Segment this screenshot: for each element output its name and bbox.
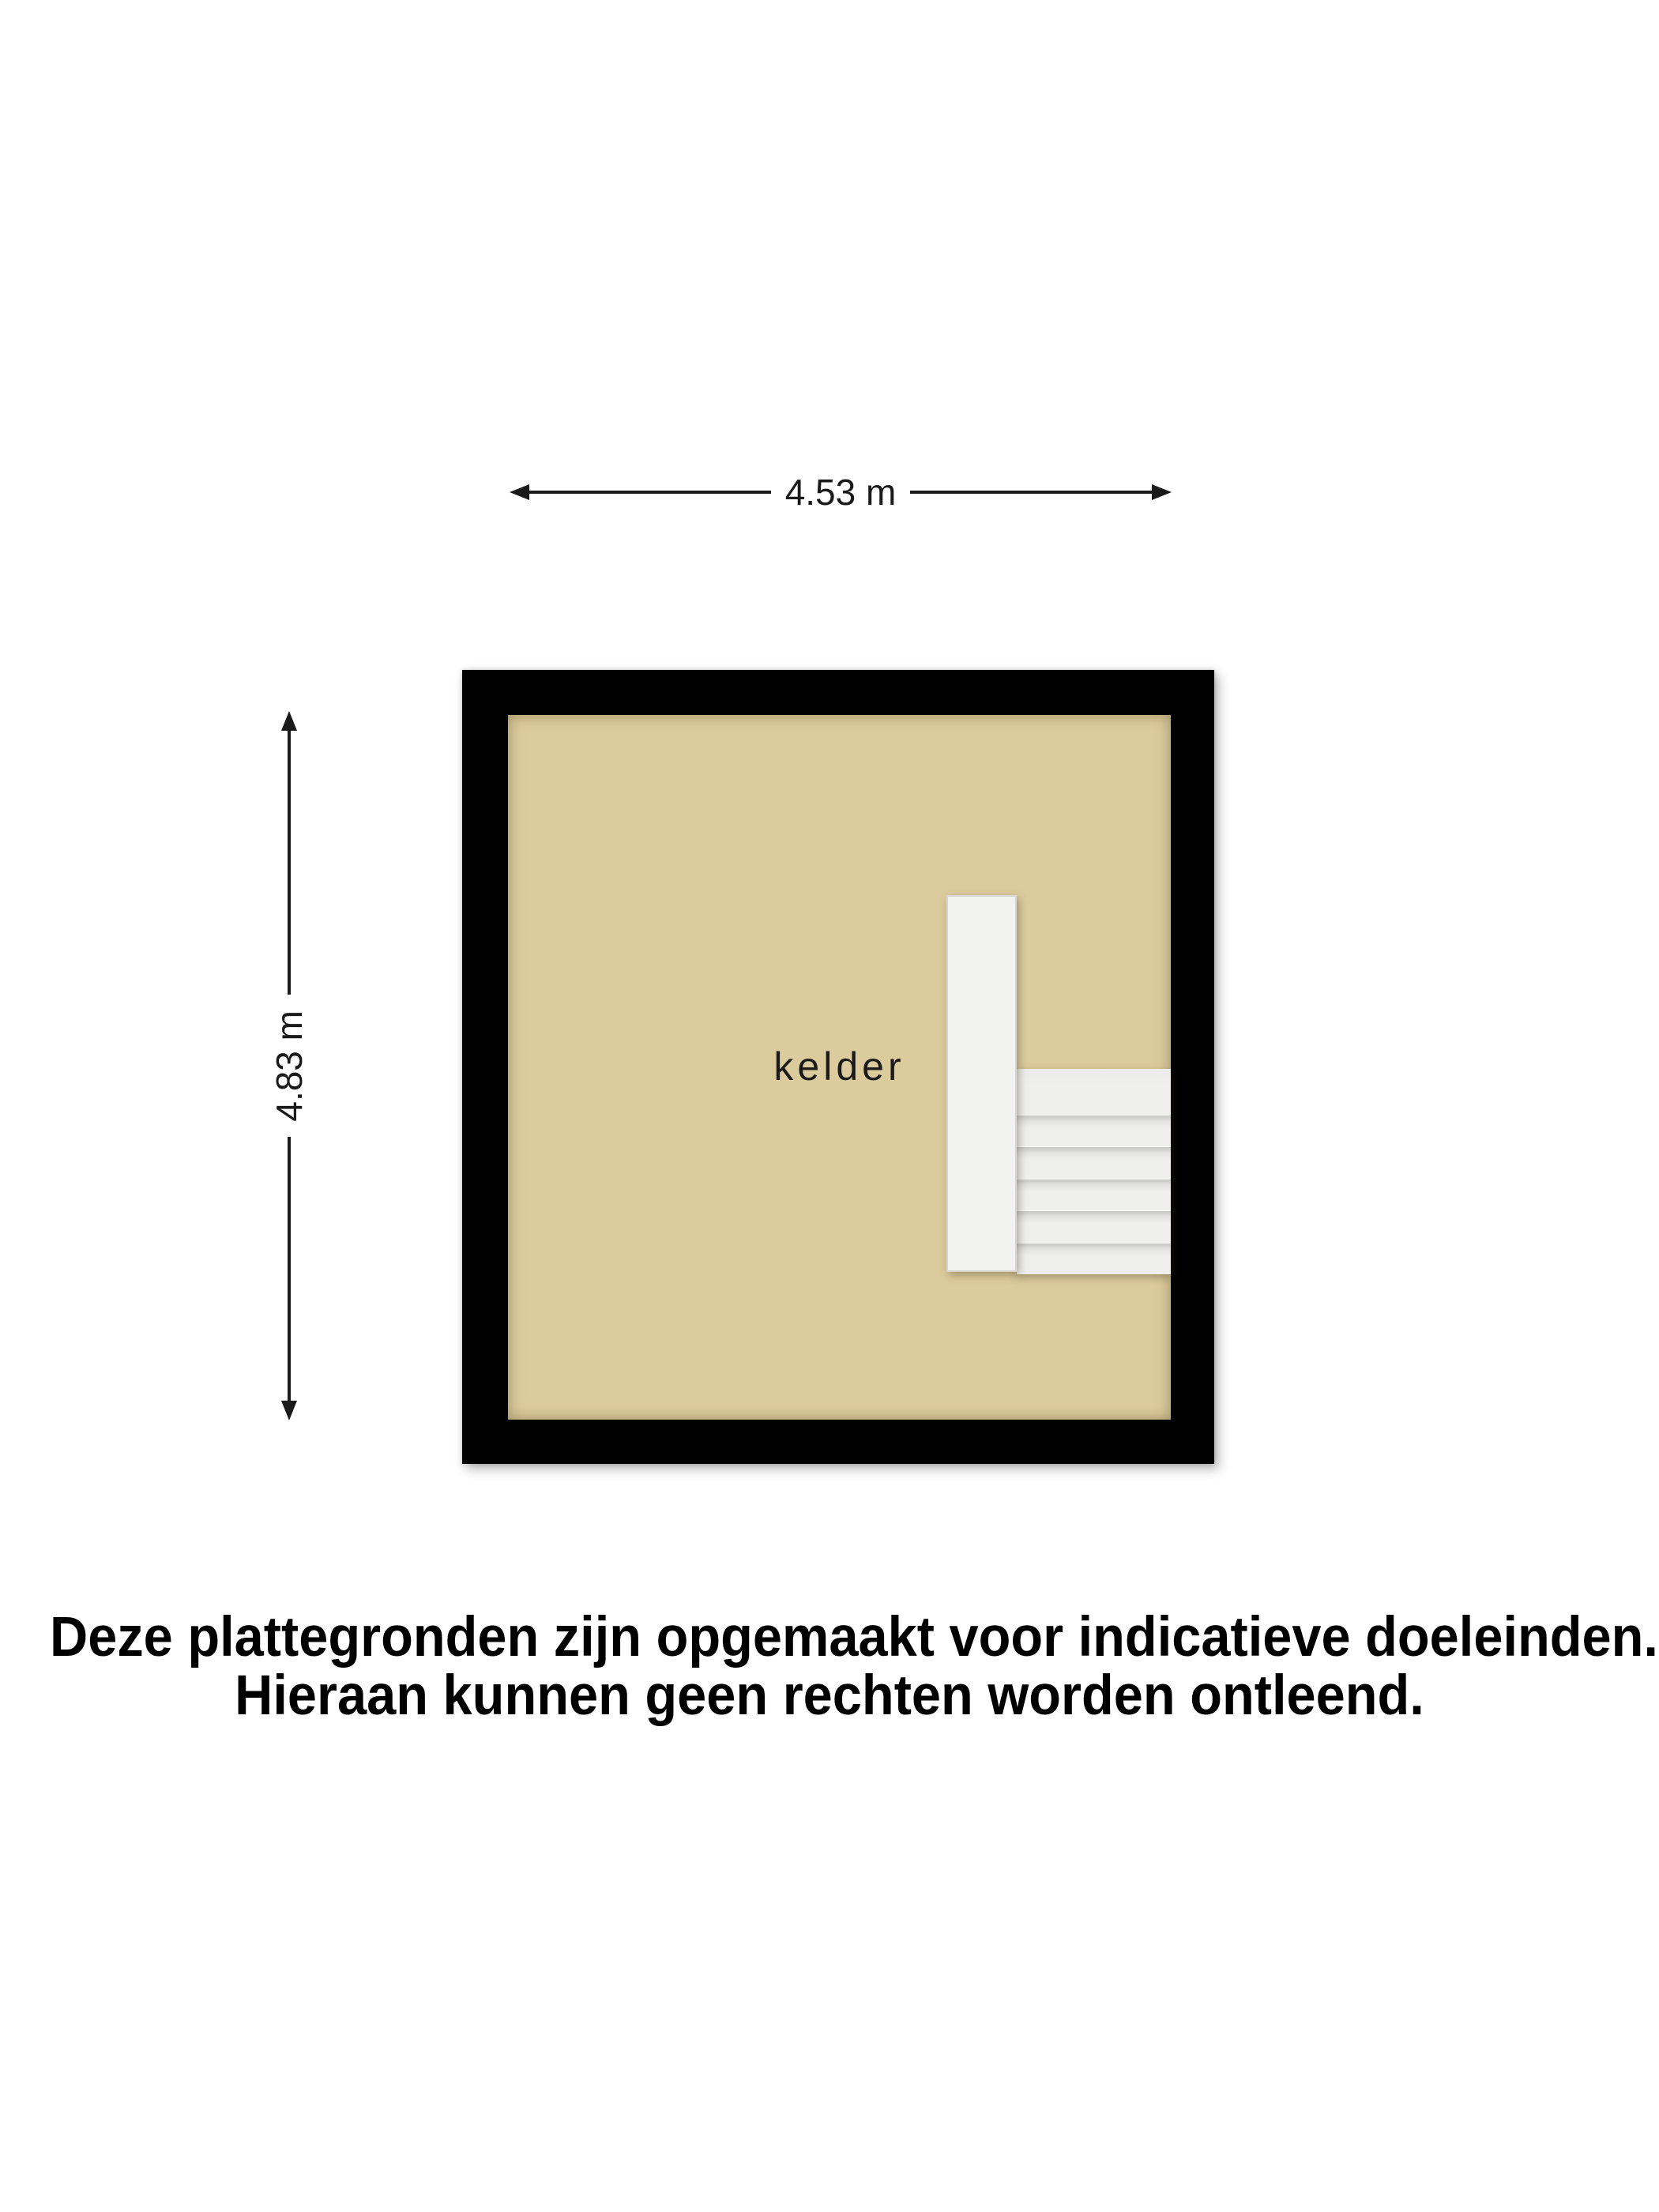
disclaimer-line-2: Hieraan kunnen geen rechten worden ontle… [50,1667,1609,1725]
height-dimension-label: 4.83 m [271,995,307,1138]
width-dimension: 4.53 m [510,472,1172,513]
arrowhead-left-icon [510,484,529,500]
floorplan-page: 4.53 m 4.83 m kelder Deze plattegronden … [0,0,1659,2212]
dimension-line [288,1137,291,1401]
dimension-line [288,731,291,995]
dimension-line [910,491,1152,494]
room-label: kelder [773,1044,905,1089]
arrowhead-down-icon [281,1401,297,1420]
staircase [1017,1069,1171,1274]
stair-partition-wall [946,895,1017,1272]
stair-tread [1017,1243,1171,1274]
arrowhead-right-icon [1152,484,1172,500]
stair-tread [1017,1210,1171,1242]
stair-tread [1017,1069,1171,1115]
disclaimer: Deze plattegronden zijn opgemaakt voor i… [50,1608,1609,1725]
stair-tread [1017,1146,1171,1178]
dimension-line [529,491,771,494]
arrowhead-up-icon [281,711,297,731]
stair-tread [1017,1115,1171,1146]
disclaimer-line-1: Deze plattegronden zijn opgemaakt voor i… [50,1608,1609,1667]
stair-tread [1017,1179,1171,1210]
width-dimension-label: 4.53 m [771,474,911,510]
height-dimension: 4.83 m [269,711,310,1420]
room-floor: kelder [508,715,1171,1420]
room-walls: kelder [462,670,1214,1464]
